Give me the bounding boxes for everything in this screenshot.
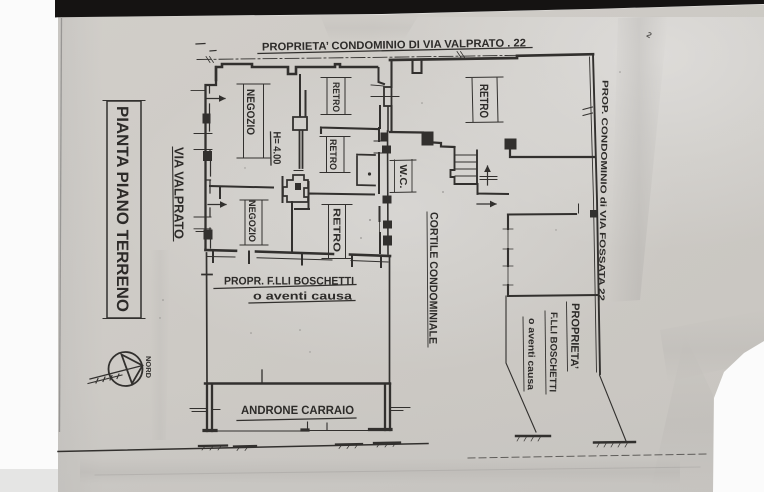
svg-text:RETRO: RETRO xyxy=(331,208,342,252)
svg-text:CORTILE CONDOMINIALE: CORTILE CONDOMINIALE xyxy=(426,212,439,344)
svg-text:RETRO: RETRO xyxy=(327,139,338,170)
svg-text:PIANTA PIANO TERRENO: PIANTA PIANO TERRENO xyxy=(113,106,131,312)
svg-text:NORD: NORD xyxy=(144,356,151,378)
svg-text:o aventi causa: o aventi causa xyxy=(525,318,537,391)
svg-text:ANDRONE CARRAIO: ANDRONE CARRAIO xyxy=(241,403,354,417)
svg-text:RETRO: RETRO xyxy=(330,82,341,112)
svg-text:W.C.: W.C. xyxy=(397,165,408,189)
svg-text:PROPRIETA’: PROPRIETA’ xyxy=(568,303,581,369)
svg-text:NEGOZIO: NEGOZIO xyxy=(246,200,257,242)
svg-text:RETRO: RETRO xyxy=(477,84,491,118)
svg-text:H= 4.00: H= 4.00 xyxy=(271,132,283,165)
svg-text:NEGOZIO: NEGOZIO xyxy=(244,89,256,135)
svg-text:F.LLI BOSCHETTI: F.LLI BOSCHETTI xyxy=(547,312,559,392)
